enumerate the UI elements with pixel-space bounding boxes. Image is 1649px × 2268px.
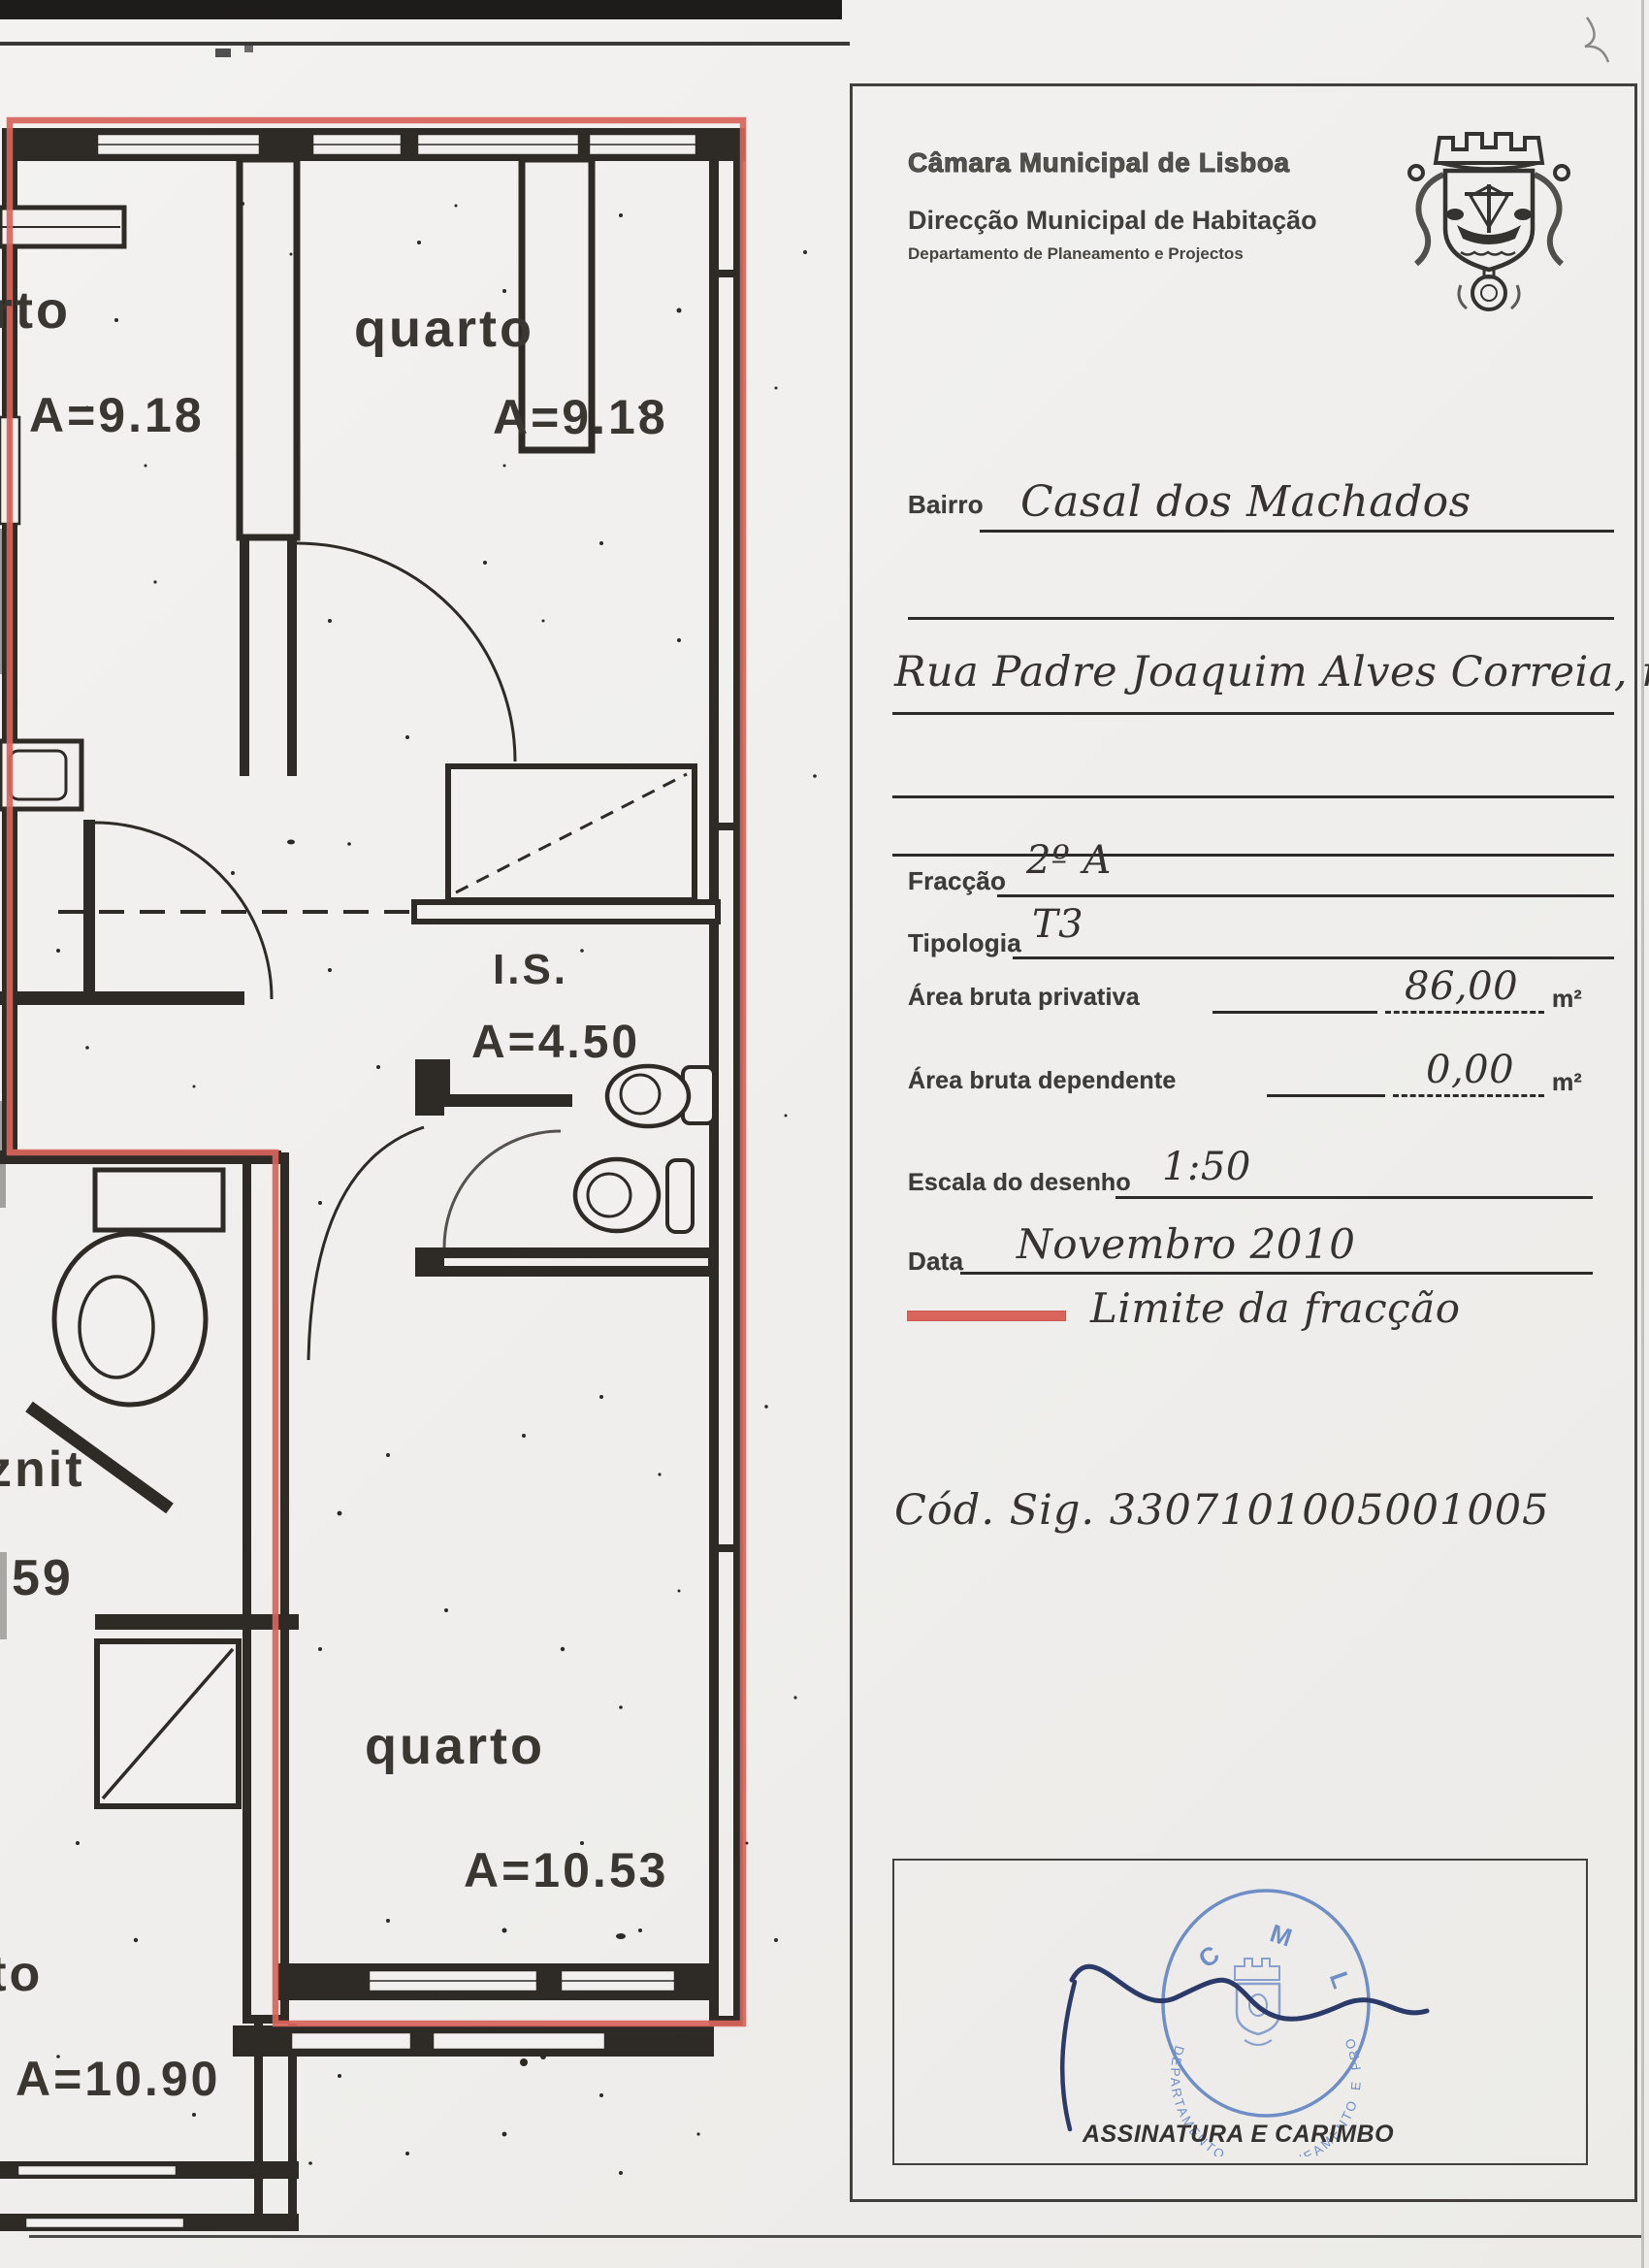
room-label: quarto xyxy=(354,300,534,358)
escala-underline xyxy=(1115,1196,1593,1199)
room-label: rto xyxy=(0,1946,43,2002)
escala-value: 1:50 xyxy=(1162,1145,1251,1189)
tipologia-underline xyxy=(1013,956,1614,959)
blank-line-2 xyxy=(892,795,1614,798)
escala-label: Escala do desenho xyxy=(908,1169,1131,1197)
blank-line-1 xyxy=(908,617,1614,620)
cml-stamp: C M L DEPARTAMENTO DE PLANEAMENTO E PROJ… xyxy=(1043,1875,1470,2156)
tipologia-value: T3 xyxy=(1032,902,1083,947)
address-value: Rua Padre Joaquim Alves Correia, nº 6 xyxy=(894,648,1649,697)
bairro-value: Casal dos Machados xyxy=(1020,477,1471,527)
room-label: A=10.53 xyxy=(464,1843,668,1897)
handwritten-signature xyxy=(1062,1966,1427,2129)
area-privativa-value: 86,00 xyxy=(1405,964,1518,1009)
legend-label: Limite da fracção xyxy=(1090,1284,1460,1332)
data-underline xyxy=(960,1272,1593,1275)
area-privativa-underline xyxy=(1212,1011,1377,1014)
address-underline xyxy=(892,712,1614,715)
svg-text:C M L: C M L xyxy=(1193,1918,1364,2012)
data-value: Novembro 2010 xyxy=(1017,1220,1355,1268)
page-edge-line xyxy=(1641,0,1644,2268)
area-dependente-underline xyxy=(1267,1094,1385,1097)
scanned-floorplan-sheet: rto A=9.18 quarto A=9.18 I.S. A=4.50 zni… xyxy=(0,0,1649,2268)
stamp-org-text: C M L xyxy=(1193,1918,1364,2012)
room-label: 59 xyxy=(12,1550,74,1606)
municipality-title: Câmara Municipal de Lisboa xyxy=(908,147,1290,178)
room-label: A=10.90 xyxy=(16,2052,220,2106)
cod-sig-value: Cód. Sig. 3307101005001005 xyxy=(894,1486,1549,1535)
room-label: A=9.18 xyxy=(29,388,205,442)
direction-title: Direcção Municipal de Habitação xyxy=(908,206,1317,236)
bathroom-bidet xyxy=(575,1159,693,1232)
room-label: rto xyxy=(0,281,71,340)
bairro-underline xyxy=(980,530,1614,533)
area-privativa-dashed-line xyxy=(1385,1011,1544,1014)
room-label: A=4.50 xyxy=(471,1017,640,1068)
fraccao-value: 2º A xyxy=(1026,838,1112,883)
area-dependente-value: 0,00 xyxy=(1426,1048,1514,1092)
wc-toilet xyxy=(54,1170,223,1405)
area-privativa-label: Área bruta privativa xyxy=(908,984,1140,1012)
room-label: I.S. xyxy=(493,946,568,993)
bathroom-toilet xyxy=(607,1066,714,1126)
door-arcs xyxy=(95,543,561,1360)
page-fold-line xyxy=(29,2235,1641,2238)
area-dependente-label: Área bruta dependente xyxy=(908,1067,1176,1095)
blank-line-3 xyxy=(892,854,1614,857)
area-privativa-unit: m² xyxy=(1552,986,1582,1014)
department-title: Departamento de Planeamento e Projectos xyxy=(908,244,1244,264)
neighbor-closet xyxy=(97,1641,239,1806)
area-dependente-dashed-line xyxy=(1393,1094,1544,1097)
room-label: A=9.18 xyxy=(493,390,668,444)
bairro-label: Bairro xyxy=(908,490,984,520)
signature-caption: ASSINATURA E CARIMBO xyxy=(892,2121,1584,2149)
area-dependente-unit: m² xyxy=(1552,1069,1582,1097)
data-label: Data xyxy=(908,1247,963,1277)
tipologia-label: Tipologia xyxy=(908,928,1021,958)
hollow-partitions xyxy=(0,159,718,922)
pen-corner-mark xyxy=(1577,6,1639,68)
fraccao-label: Fracção xyxy=(908,866,1006,896)
room-label: quarto xyxy=(365,1717,545,1775)
room-label: znit xyxy=(0,1442,85,1498)
fraccao-underline xyxy=(997,894,1614,897)
lisbon-crest-icon xyxy=(1393,101,1583,322)
stamp-crest xyxy=(1235,1959,1279,2045)
floorplan-drawing: rto A=9.18 quarto A=9.18 I.S. A=4.50 zni… xyxy=(0,0,854,2268)
legend-red-line-sample xyxy=(908,1312,1065,1320)
